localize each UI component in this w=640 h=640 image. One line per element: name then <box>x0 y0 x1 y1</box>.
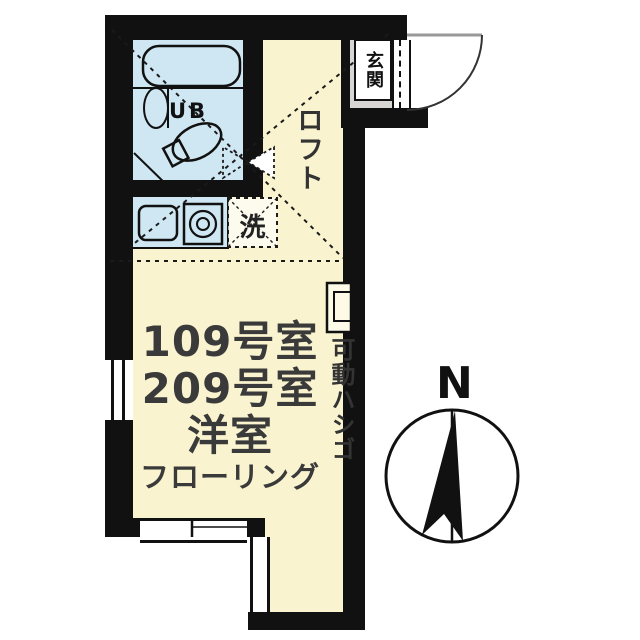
room-type-label: 洋室 <box>110 412 350 459</box>
room-info-block: 109号室 209号室 洋室 フローリング <box>110 318 350 495</box>
door-swing-icon <box>407 35 482 110</box>
compass-icon <box>386 410 518 542</box>
laundry-label: 洗 <box>228 207 277 244</box>
bathtub-icon <box>143 46 240 86</box>
washbasin-icon <box>144 88 168 128</box>
loft-label: ロフト <box>288 106 327 193</box>
bathroom-corner-line <box>134 153 172 190</box>
compass-north-label: N <box>436 358 470 409</box>
entrance-label: 玄関 <box>360 51 386 89</box>
floor-plan-canvas: 玄関 ロフト UB 洗 可動ハシゴ 109号室 209号室 洋室 フローリング … <box>0 0 640 640</box>
entrance-label-box: 玄関 <box>354 39 392 101</box>
room-number-1: 109号室 <box>110 318 350 365</box>
room-number-2: 209号室 <box>110 365 350 412</box>
toilet-icon <box>160 116 227 172</box>
flooring-label: フローリング <box>110 459 350 495</box>
stove-burner-icon <box>190 211 216 237</box>
unit-bath-label: UB <box>169 99 208 123</box>
stove-burner-icon <box>197 218 209 230</box>
loft-arrow-right <box>248 147 274 178</box>
